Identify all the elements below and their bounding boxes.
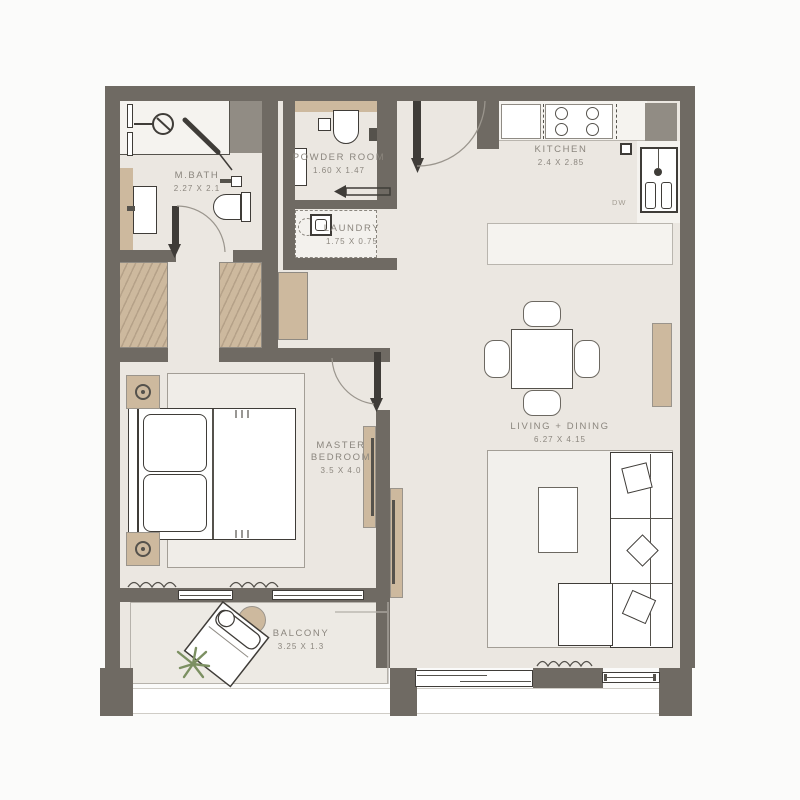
toilet-tank	[241, 192, 251, 222]
wall-living-bottom	[533, 668, 603, 688]
bath-faucet-icon	[127, 206, 135, 211]
floor-plan: DW	[0, 0, 800, 800]
room-name: M.BATH	[174, 170, 220, 182]
room-dims: 3.25 X 1.3	[273, 641, 330, 652]
hall-closet	[278, 272, 308, 340]
toilet-bowl	[213, 194, 241, 220]
room-label-living-dining: LIVING + DINING 6.27 X 4.15	[510, 421, 609, 445]
room-label-master-bedroom: MASTER BEDROOM 3.5 X 4.0	[311, 440, 371, 476]
room-dims: 2.4 X 2.85	[535, 157, 588, 168]
room-dims: 2.27 X 2.1	[174, 183, 220, 194]
stove-burner	[555, 107, 568, 120]
duct-bath	[230, 101, 262, 153]
powder-flush-plate	[318, 118, 331, 131]
coffee-table	[538, 487, 578, 553]
bath-vanity	[119, 168, 133, 256]
wall-divider	[376, 410, 390, 668]
sofa-seam	[611, 518, 672, 519]
fridge	[501, 104, 541, 139]
counter-seam	[543, 104, 544, 139]
bed-pillow	[143, 414, 207, 472]
dining-chair	[574, 340, 600, 378]
room-name: BALCONY	[273, 628, 330, 640]
wall-right	[680, 86, 695, 668]
window-tick	[653, 674, 656, 681]
room-dims: 1.60 X 1.47	[293, 165, 386, 176]
shower-glass-panel	[127, 104, 133, 128]
dining-chair	[523, 301, 561, 327]
living-cabinet	[652, 323, 672, 407]
wall-powder-left	[283, 101, 295, 258]
room-name: LAUNDRY	[324, 223, 380, 235]
tp-holder-bar	[220, 179, 231, 183]
dining-chair	[523, 390, 561, 416]
nightstand-lamp-dot	[141, 547, 145, 551]
living-sliding-window	[415, 670, 533, 687]
wall-powder-laundry	[283, 200, 397, 209]
column	[659, 668, 692, 716]
bed-blanket-line	[212, 409, 214, 539]
room-name: BEDROOM	[311, 452, 371, 464]
room-dims: 1.75 X 0.75	[324, 236, 380, 247]
tp-holder-icon	[231, 176, 242, 187]
room-label-laundry: LAUNDRY 1.75 X 0.75	[324, 223, 380, 247]
window-midline	[607, 677, 653, 678]
bedroom-tv-screen	[371, 438, 374, 516]
wardrobe	[119, 262, 168, 348]
stove-burner	[555, 123, 568, 136]
wall-kitchen-jamb	[477, 101, 499, 149]
sink-faucet-stem	[658, 149, 660, 169]
sofa-chaise	[558, 583, 613, 646]
wall-bath-bottom-b	[233, 250, 262, 262]
room-name: KITCHEN	[535, 144, 588, 156]
stove-burner	[586, 123, 599, 136]
sofa-seam	[611, 583, 672, 584]
wall-bath-right	[262, 86, 278, 350]
shower-glass-panel	[127, 132, 133, 156]
wall-powder-right	[377, 101, 397, 200]
stove-burner	[586, 107, 599, 120]
window-midline	[417, 675, 487, 676]
dining-chair	[484, 340, 510, 378]
balcony-table	[238, 606, 266, 634]
kitchen-island	[487, 223, 673, 265]
dining-table	[511, 329, 573, 389]
wall-bedroom-top-a	[119, 348, 168, 362]
room-label-powder-room: POWDER ROOM 1.60 X 1.47	[293, 152, 386, 176]
powder-toilet	[333, 110, 359, 144]
powder-door-handle	[369, 128, 377, 141]
room-dims: 6.27 X 4.15	[510, 434, 609, 445]
switch-icon	[620, 143, 632, 155]
wall-left	[105, 86, 120, 668]
shower-area	[119, 101, 230, 155]
wall-bedroom-top-b	[219, 348, 376, 362]
window-midline	[460, 681, 531, 682]
column	[390, 668, 417, 716]
room-label-balcony: BALCONY 3.25 X 1.3	[273, 628, 330, 652]
wardrobe	[219, 262, 262, 348]
counter-seam	[616, 104, 617, 139]
window-midline	[274, 595, 362, 596]
wall-top	[105, 86, 695, 101]
wall-divider-stub	[376, 348, 390, 362]
sink-faucet-icon	[654, 168, 662, 176]
window-midline	[180, 595, 231, 596]
wall-bath-bottom-a	[119, 250, 176, 262]
sink-basin	[645, 182, 656, 209]
sink-basin	[661, 182, 672, 209]
duct-kitchen	[645, 103, 677, 141]
wall-laundry-bottom	[283, 258, 397, 270]
bed-pillow	[143, 474, 207, 532]
room-name: MASTER	[311, 440, 371, 452]
bed-headboard	[128, 404, 138, 542]
bath-sink	[133, 186, 157, 234]
room-dims: 3.5 X 4.0	[311, 465, 371, 476]
room-name: POWDER ROOM	[293, 152, 386, 164]
room-label-kitchen: KITCHEN 2.4 X 2.85	[535, 144, 588, 168]
nightstand-lamp-dot	[141, 390, 145, 394]
living-tv-screen	[392, 500, 395, 584]
dishwasher-label: DW	[612, 198, 627, 207]
room-name: LIVING + DINING	[510, 421, 609, 433]
room-label-m-bath: M.BATH 2.27 X 2.1	[174, 170, 220, 194]
column	[100, 668, 133, 716]
